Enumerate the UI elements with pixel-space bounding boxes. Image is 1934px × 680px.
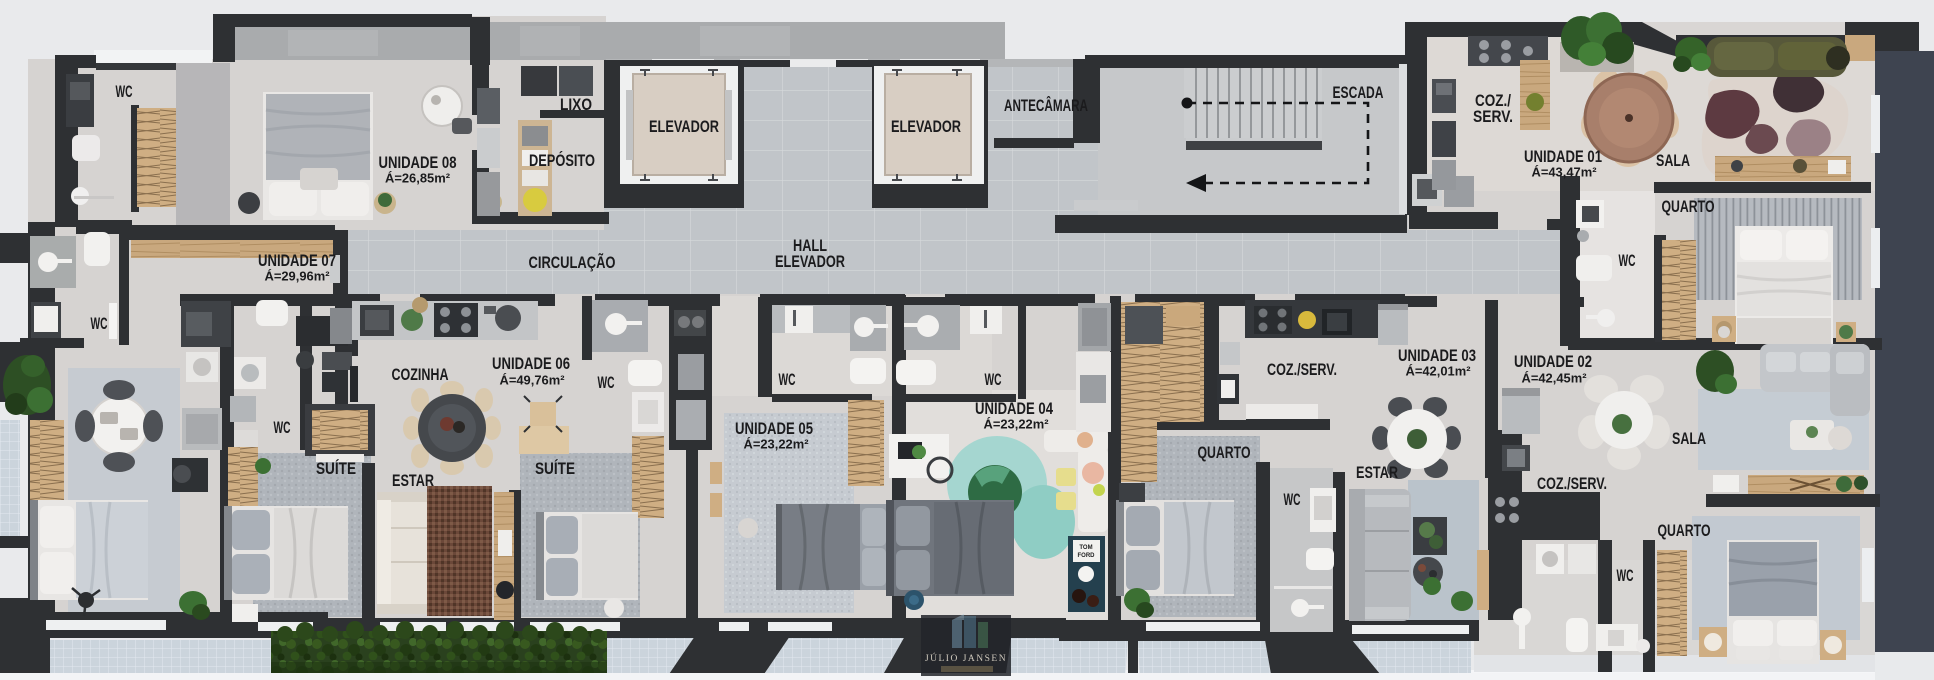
svg-text:COZ./SERV.: COZ./SERV. <box>1537 474 1607 493</box>
svg-text:QUARTO: QUARTO <box>1198 443 1251 462</box>
svg-text:UNIDADE 05: UNIDADE 05 <box>735 419 813 438</box>
svg-text:Á=42,45m²: Á=42,45m² <box>1522 371 1588 386</box>
svg-text:ESTAR: ESTAR <box>392 471 434 490</box>
svg-text:QUARTO: QUARTO <box>1662 197 1715 216</box>
svg-text:UNIDADE 03: UNIDADE 03 <box>1398 346 1476 365</box>
svg-text:Á=43,47m²: Á=43,47m² <box>1532 165 1598 180</box>
svg-text:LIXO: LIXO <box>560 95 592 114</box>
svg-text:Á=23,22m²: Á=23,22m² <box>744 437 810 452</box>
svg-text:SERV.: SERV. <box>1473 107 1513 126</box>
svg-text:WC: WC <box>985 370 1002 389</box>
svg-text:SALA: SALA <box>1656 151 1690 170</box>
svg-text:Á=42,01m²: Á=42,01m² <box>1406 364 1472 379</box>
svg-text:UNIDADE 08: UNIDADE 08 <box>379 153 457 172</box>
svg-text:SUÍTE: SUÍTE <box>535 459 575 478</box>
svg-text:Á=23,22m²: Á=23,22m² <box>984 417 1050 432</box>
svg-text:COZINHA: COZINHA <box>392 365 449 384</box>
svg-text:UNIDADE 07: UNIDADE 07 <box>258 251 336 270</box>
svg-text:ELEVADOR: ELEVADOR <box>649 117 719 136</box>
svg-text:WC: WC <box>1284 490 1301 509</box>
svg-text:ESTAR: ESTAR <box>1356 463 1398 482</box>
svg-text:WC: WC <box>1619 251 1636 270</box>
svg-text:Á=29,96m²: Á=29,96m² <box>265 269 331 284</box>
svg-text:SALA: SALA <box>1672 429 1706 448</box>
svg-text:ELEVADOR: ELEVADOR <box>775 252 845 271</box>
svg-text:WC: WC <box>1617 566 1634 585</box>
svg-text:JÚLIO JANSEN: JÚLIO JANSEN <box>925 652 1007 664</box>
svg-text:WC: WC <box>91 314 108 333</box>
svg-text:Á=26,85m²: Á=26,85m² <box>385 171 451 186</box>
svg-text:ELEVADOR: ELEVADOR <box>891 117 961 136</box>
svg-text:UNIDADE 06: UNIDADE 06 <box>492 354 570 373</box>
svg-text:UNIDADE 04: UNIDADE 04 <box>975 399 1053 418</box>
svg-text:ESCADA: ESCADA <box>1333 83 1384 102</box>
svg-text:TOM: TOM <box>1079 545 1092 551</box>
svg-text:Á=49,76m²: Á=49,76m² <box>500 373 566 388</box>
svg-text:WC: WC <box>779 370 796 389</box>
svg-text:DEPÓSITO: DEPÓSITO <box>529 151 595 170</box>
svg-text:QUARTO: QUARTO <box>1658 521 1711 540</box>
svg-text:COZ./SERV.: COZ./SERV. <box>1267 360 1337 379</box>
svg-text:UNIDADE 01: UNIDADE 01 <box>1524 147 1602 166</box>
svg-text:UNIDADE 02: UNIDADE 02 <box>1514 352 1592 371</box>
svg-text:FORD: FORD <box>1078 553 1096 559</box>
svg-text:ANTECÂMARA: ANTECÂMARA <box>1004 96 1088 115</box>
svg-text:WC: WC <box>598 373 615 392</box>
svg-text:WC: WC <box>116 82 133 101</box>
svg-text:CIRCULAÇÃO: CIRCULAÇÃO <box>529 252 616 272</box>
svg-text:SUÍTE: SUÍTE <box>316 459 356 478</box>
svg-text:WC: WC <box>274 418 291 437</box>
